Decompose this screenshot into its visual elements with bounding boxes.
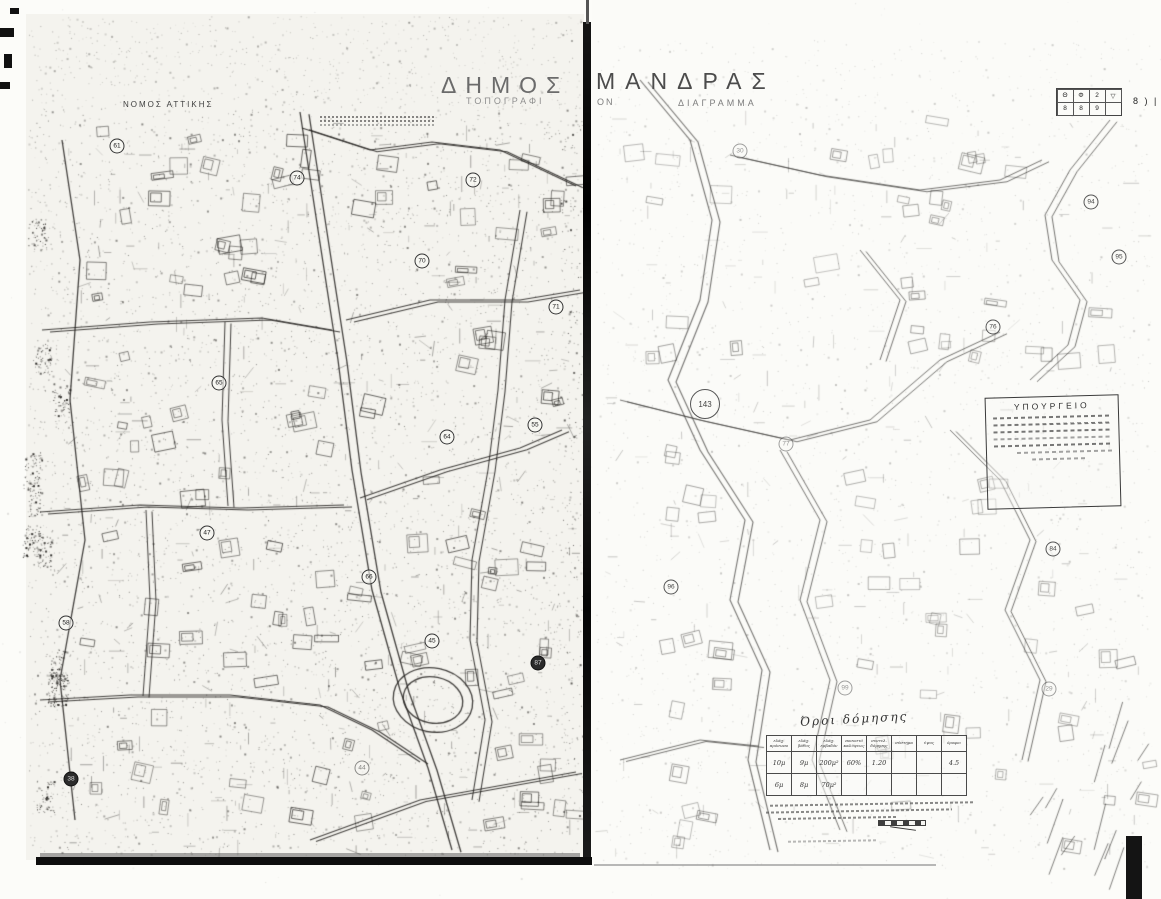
block-number-circle: 47 [200, 526, 215, 541]
block-number-circle: 74 [290, 171, 305, 186]
scan-blot [10, 8, 19, 14]
block-number-circle: 58 [59, 616, 74, 631]
block-number-circle: 96 [664, 580, 679, 595]
terms-table-header-cell: ελάχ. πρόσωπο [767, 736, 792, 752]
corner-legend-glyph: 2 [1089, 89, 1106, 103]
terms-table-cell: 10μ [767, 752, 792, 774]
terms-table-cell [917, 774, 942, 796]
ministry-stamp-title: ΥΠΟΥΡΓΕΙΟ [986, 399, 1118, 412]
block-number-circle: 143 [690, 389, 720, 419]
scale-bar [878, 820, 926, 826]
corner-legend-glyph: 8 [1057, 102, 1074, 116]
corner-legend-box: ΘΦ2▽889 [1056, 88, 1122, 116]
block-number-circle: 77 [779, 437, 794, 452]
block-number-circle: 84 [1046, 542, 1061, 557]
title-smudge-notes [318, 114, 436, 130]
corner-legend-side-marks: 8 ) | [1133, 96, 1158, 106]
page-fold-line [583, 22, 591, 860]
block-number-circle: 99 [838, 681, 853, 696]
block-number-circle: 72 [466, 173, 481, 188]
block-number-circle: 66 [362, 570, 377, 585]
corner-legend-glyph: 8 [1073, 102, 1090, 116]
block-number-circle: 55 [528, 418, 543, 433]
terms-table-cell: 1.20 [867, 752, 892, 774]
subtitle-on: ΟΝ [597, 97, 615, 107]
page-fold-top [586, 0, 589, 24]
block-number-circle: 61 [110, 139, 125, 154]
terms-table-cell: 6μ [767, 774, 792, 796]
terms-table-cell [892, 752, 917, 774]
terms-table-cell: 70μ² [817, 774, 842, 796]
block-number-circle: 87 [531, 656, 546, 671]
terms-table-cell: 4.5 [942, 752, 967, 774]
subtitle-topografi: ΤΟΠΟΓΡΑΦΙ [466, 96, 545, 106]
terms-table-cell: 8μ [792, 774, 817, 796]
terms-table-cell [892, 774, 917, 796]
corner-legend-glyph: 9 [1089, 102, 1106, 116]
corner-legend-glyph: ▽ [1105, 89, 1122, 103]
block-number-circle: 95 [1112, 250, 1127, 265]
subtitle-diagramma: ΔΙΑΓΡΑΜΜΑ [678, 98, 757, 108]
terms-table-header-cell: συντελ. δόμησης [867, 736, 892, 752]
corner-legend-glyph: Θ [1057, 89, 1074, 103]
scanned-map-page: ΝΟΜΟΣ ΑΤΤΙΚΗΣ ΔΗΜΟΣ ΜΑΝΔΡΑΣ ΤΟΠΟΓΡΑΦΙ ΟΝ… [0, 0, 1161, 899]
terms-table-header-cell: όροφοι [942, 736, 967, 752]
terms-table-header-cell: ελάχ. βάθος [792, 736, 817, 752]
block-number-circle: 44 [355, 761, 370, 776]
region-label: ΝΟΜΟΣ ΑΤΤΙΚΗΣ [123, 100, 213, 109]
block-number-circle: 94 [1084, 195, 1099, 210]
terms-table-cell: 60% [842, 752, 867, 774]
bottom-scan-band [36, 857, 592, 865]
terms-table-cell [867, 774, 892, 796]
block-number-circle: 70 [415, 254, 430, 269]
corner-legend-glyph: Φ [1073, 89, 1090, 103]
block-number-circle: 30 [733, 144, 748, 159]
terms-table-cell: 200μ² [817, 752, 842, 774]
terms-table-header-cell: ύψος [917, 736, 942, 752]
block-number-circle: 71 [549, 300, 564, 315]
terms-table-header-cell: ελάχ. εμβαδόν [817, 736, 842, 752]
block-number-circle: 64 [440, 430, 455, 445]
right-edge-scan-bar [1126, 836, 1142, 899]
block-number-circle: 76 [986, 320, 1001, 335]
bottom-edge-line [594, 864, 936, 866]
scan-blot [4, 54, 12, 68]
terms-table-cell [842, 774, 867, 796]
terms-table-cell: 9μ [792, 752, 817, 774]
terms-table-header-cell: σύστημα [892, 736, 917, 752]
block-number-circle: 29 [1042, 682, 1057, 697]
block-number-circle: 65 [212, 376, 227, 391]
block-number-circle: 45 [425, 634, 440, 649]
terms-table-header-cell: ποσοστό καλύψεως [842, 736, 867, 752]
scan-blot [0, 28, 14, 37]
block-number-circle: 38 [64, 772, 79, 787]
terms-table-cell [942, 774, 967, 796]
scan-blot [0, 82, 10, 89]
page-title-demos: ΔΗΜΟΣ [441, 72, 569, 99]
page-title-mandras: ΜΑΝΔΡΑΣ [596, 68, 776, 95]
terms-table-cell [917, 752, 942, 774]
building-terms-table: ελάχ. πρόσωποελάχ. βάθοςελάχ. εμβαδόνποσ… [766, 735, 967, 796]
ministry-stamp-box: ΥΠΟΥΡΓΕΙΟ [985, 394, 1122, 509]
